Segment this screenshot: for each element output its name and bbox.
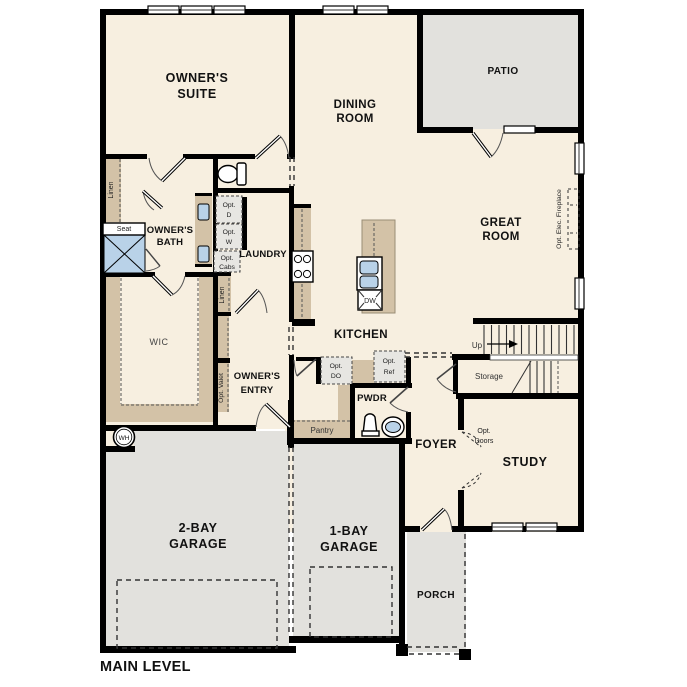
porch-label: PORCH: [417, 590, 455, 601]
opt-do-label-line2: DO: [331, 373, 341, 380]
kitchen-sink-icon: [357, 257, 382, 290]
window: [181, 6, 212, 14]
window: [214, 6, 245, 14]
opt-cabs-label-line1: Opt.: [221, 255, 234, 262]
wic-shelf-bottom: [106, 404, 213, 422]
garage-1bay-label-line2: GARAGE: [320, 540, 378, 554]
toilet-icon: [218, 163, 246, 185]
linen-suite-label: Linen: [108, 181, 115, 198]
linen-hall-label: Linen: [219, 286, 226, 303]
great-room-label-line2: ROOM: [482, 231, 519, 243]
pwdr-sink-icon: [382, 417, 404, 437]
window: [575, 278, 584, 309]
opt-refrigerator-box: [374, 351, 405, 382]
window: [323, 6, 354, 14]
opt-fireplace-label: Opt. Elec. Fireplace: [556, 189, 563, 249]
counter-between-do-ref: [352, 360, 374, 384]
storage-label: Storage: [475, 372, 504, 381]
opt-doors-label-line2: Doors: [475, 438, 494, 445]
sink-icon: [198, 204, 209, 220]
opt-valet-label: Opt. Valet: [218, 373, 225, 403]
garage-2bay-label-line2: GARAGE: [169, 537, 227, 551]
opt-w-label-line2: W: [226, 239, 233, 246]
wh-label: WH: [119, 435, 130, 442]
patio-label: PATIO: [487, 66, 518, 77]
window: [492, 523, 523, 531]
pantry-label: Pantry: [310, 426, 333, 435]
opt-ref-label-line1: Opt.: [383, 358, 396, 365]
pwdr-label: PWDR: [357, 393, 387, 404]
owners-entry-label-line1: OWNER'S: [234, 371, 280, 382]
study-label: STUDY: [503, 455, 548, 469]
porch-post-right: [459, 649, 471, 660]
garage-1bay-label-line1: 1-BAY: [330, 524, 369, 538]
owners-entry-label-line2: ENTRY: [241, 385, 274, 396]
foyer-label: FOYER: [415, 439, 457, 451]
dining-label-line2: ROOM: [336, 113, 373, 125]
owners-suite-label-line1: OWNER'S: [166, 71, 229, 85]
opt-cabs-label-line2: Cabs: [219, 264, 235, 271]
floorplan-drawing: OWNER'S SUITE DINING ROOM PATIO GREAT RO…: [0, 0, 687, 687]
great-room-label-line1: GREAT: [480, 217, 521, 229]
kitchen-label: KITCHEN: [334, 329, 388, 341]
owners-bath-label-line1: OWNER'S: [147, 225, 193, 236]
plan-title: MAIN LEVEL: [100, 659, 191, 675]
floorplan-page: OWNER'S SUITE DINING ROOM PATIO GREAT RO…: [0, 0, 687, 687]
wic-shelf-right: [199, 276, 213, 410]
sink-icon: [198, 246, 209, 262]
porch-post-left: [396, 644, 408, 656]
owners-suite-label-line2: SUITE: [177, 87, 216, 101]
up-label: Up: [472, 341, 483, 350]
opt-doors-label-line1: Opt.: [477, 428, 490, 435]
opt-w-label-line1: Opt.: [223, 229, 236, 236]
window: [357, 6, 388, 14]
window: [575, 143, 584, 174]
dining-label-line1: DINING: [334, 99, 377, 111]
laundry-label: LAUNDRY: [239, 249, 287, 260]
shower-icon: [104, 235, 145, 273]
window: [526, 523, 557, 531]
range-icon: [292, 251, 313, 282]
window: [148, 6, 179, 14]
wic-label: WIC: [150, 337, 169, 347]
opt-ref-label-line2: Ref: [384, 369, 395, 376]
opt-d-label-line1: Opt.: [223, 202, 236, 209]
wic-shelf-left: [106, 276, 120, 410]
seat-label: Seat: [117, 226, 131, 233]
dw-label: DW: [364, 298, 376, 305]
patio-threshold: [504, 126, 535, 133]
garage-2bay-label-line1: 2-BAY: [179, 521, 218, 535]
opt-do-label-line1: Opt.: [330, 363, 343, 370]
opt-d-label-line2: D: [227, 212, 232, 219]
owners-bath-label-line2: BATH: [157, 237, 183, 248]
